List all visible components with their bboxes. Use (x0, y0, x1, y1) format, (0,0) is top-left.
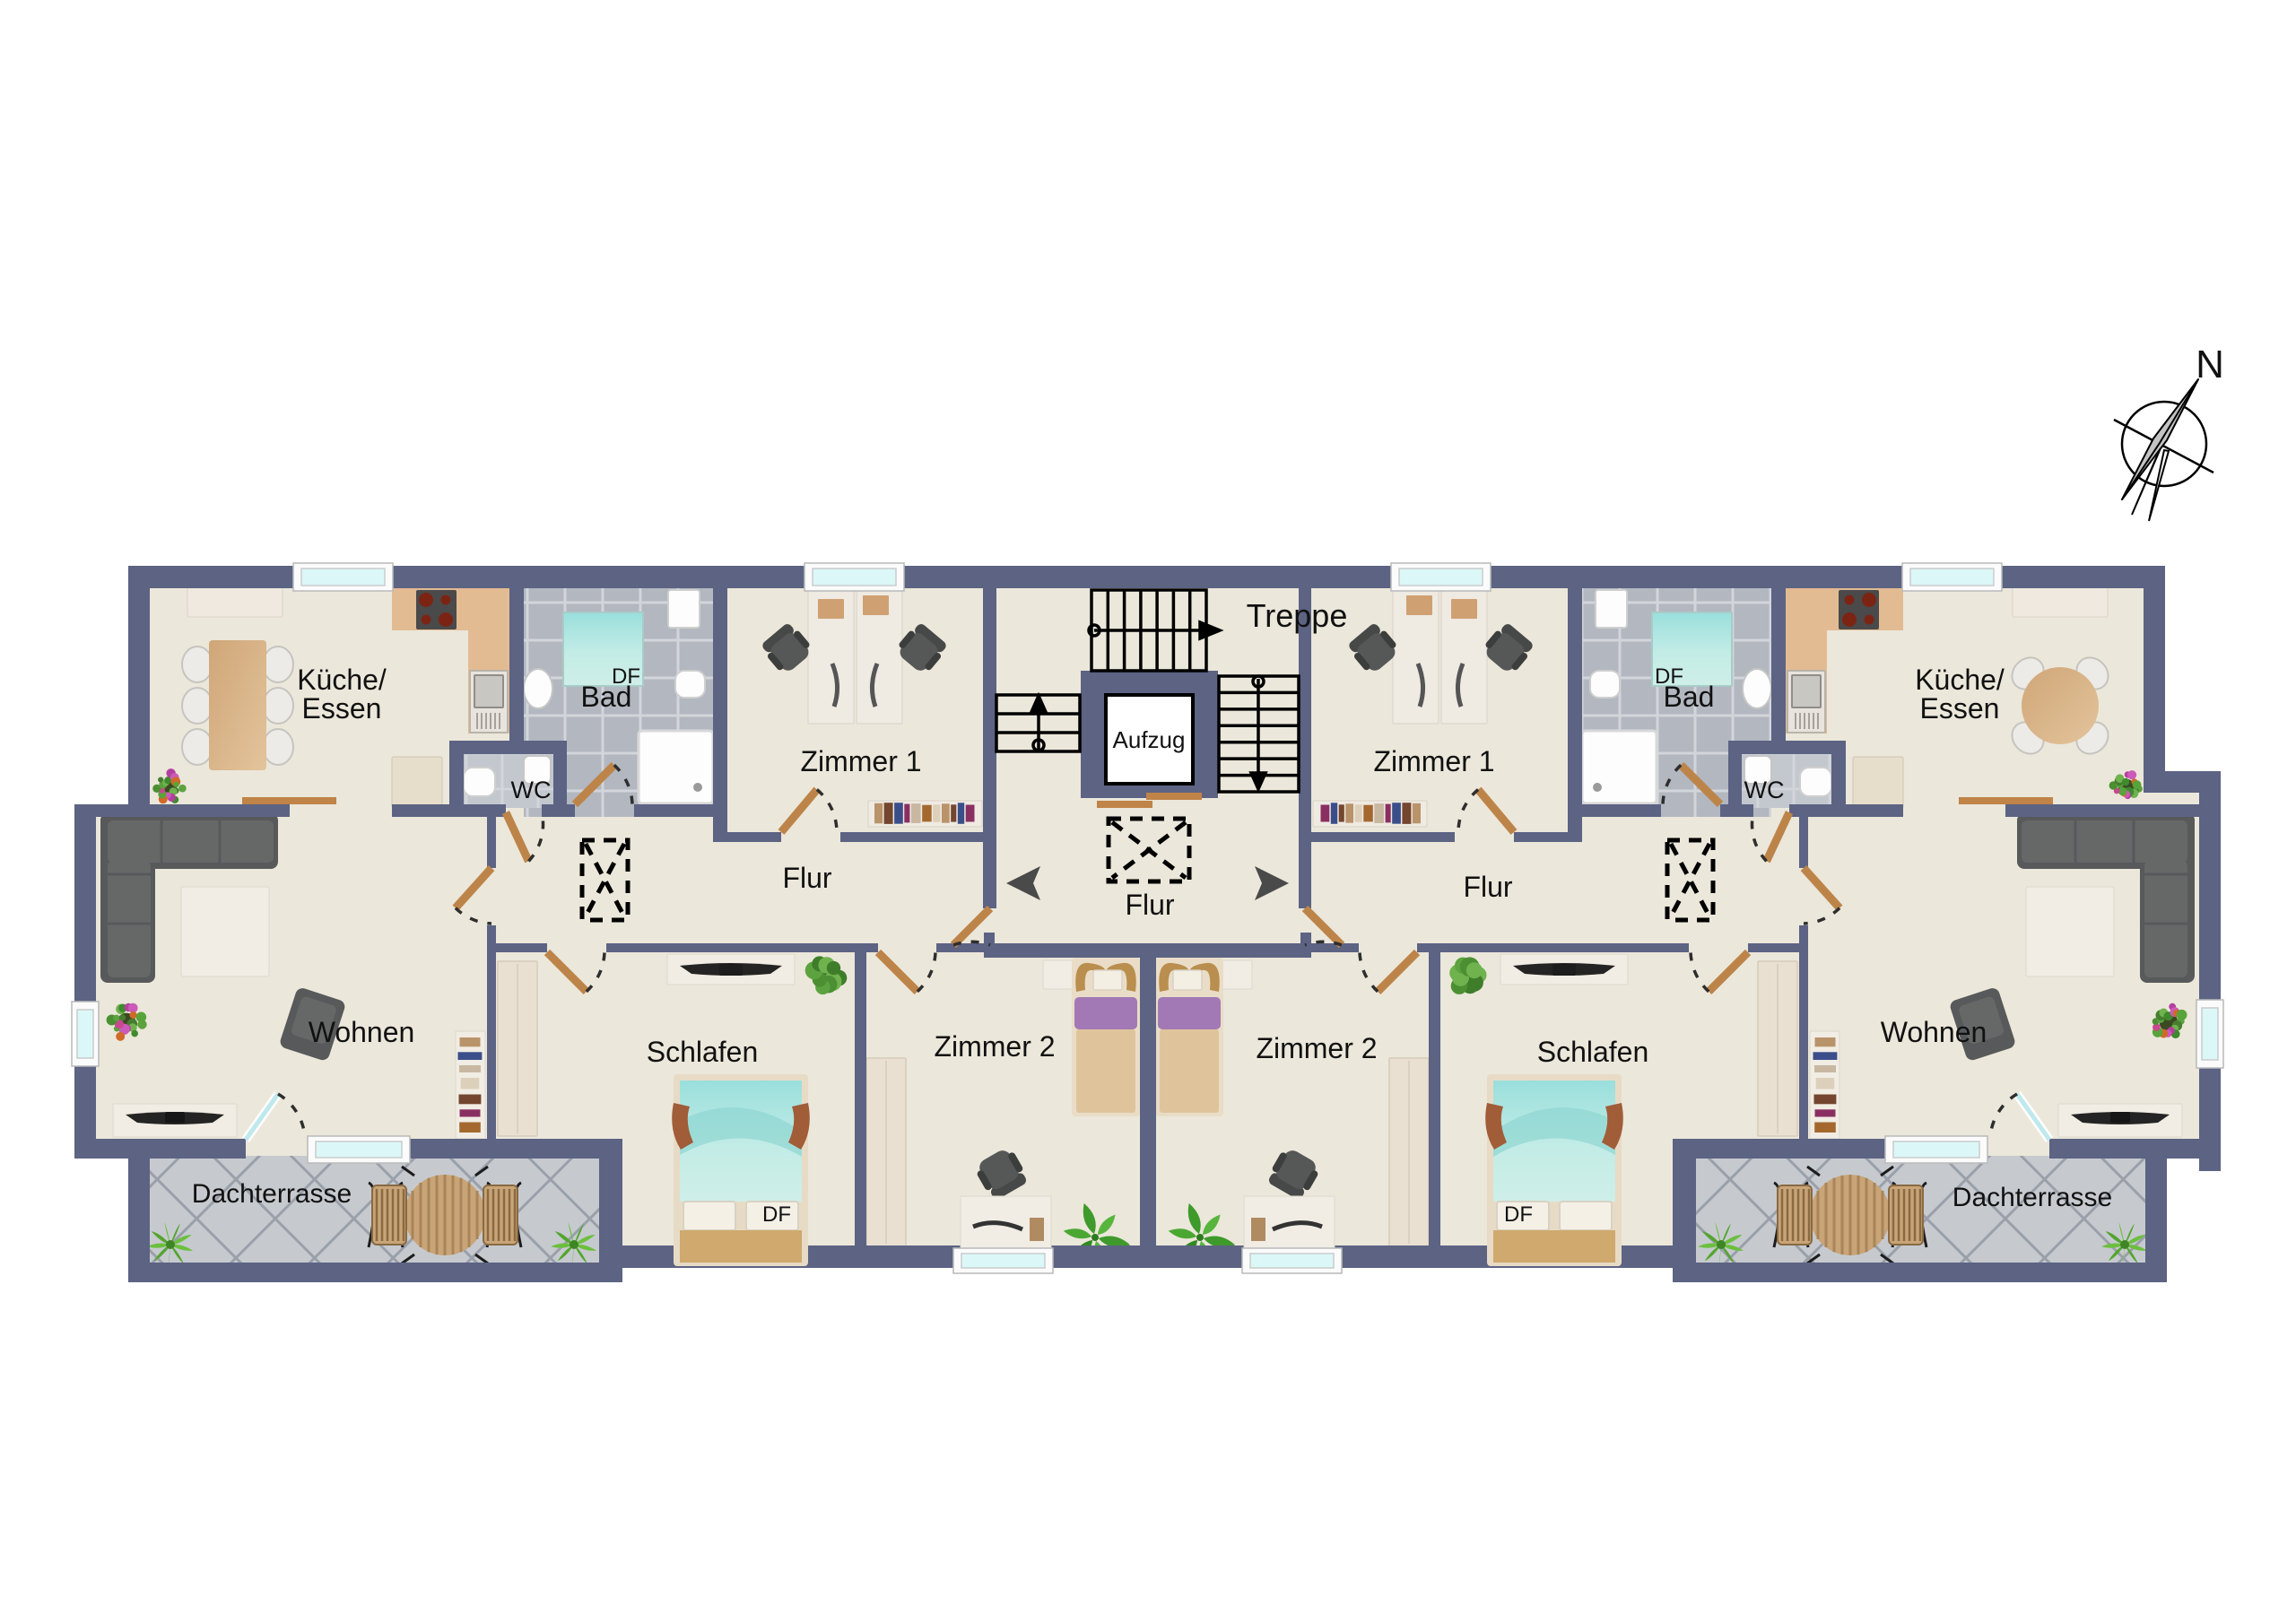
svg-text:Wohnen: Wohnen (309, 1016, 415, 1048)
svg-text:N: N (2196, 343, 2224, 386)
svg-text:Zimmer 1: Zimmer 1 (1373, 745, 1494, 777)
svg-text:Küche/: Küche/ (297, 664, 387, 696)
svg-text:WC: WC (511, 777, 552, 803)
svg-text:DF: DF (612, 664, 640, 689)
svg-text:Schlafen: Schlafen (1537, 1036, 1649, 1068)
svg-text:Dachterrasse: Dachterrasse (192, 1179, 352, 1209)
svg-text:Küche/: Küche/ (1915, 664, 2005, 696)
svg-text:Essen: Essen (1920, 692, 2000, 725)
svg-text:Essen: Essen (302, 692, 382, 725)
svg-text:Zimmer 2: Zimmer 2 (934, 1030, 1055, 1063)
svg-text:Schlafen: Schlafen (647, 1036, 759, 1068)
svg-text:Flur: Flur (782, 862, 831, 894)
svg-text:Flur: Flur (1125, 889, 1174, 921)
svg-text:Zimmer 1: Zimmer 1 (800, 745, 921, 777)
svg-text:Treppe: Treppe (1247, 597, 1348, 634)
svg-text:Flur: Flur (1463, 871, 1512, 903)
svg-text:Dachterrasse: Dachterrasse (1952, 1183, 2112, 1212)
svg-text:Zimmer 2: Zimmer 2 (1256, 1032, 1377, 1064)
svg-text:DF: DF (1655, 664, 1683, 689)
svg-text:WC: WC (1744, 777, 1785, 803)
svg-text:Aufzug: Aufzug (1113, 726, 1186, 753)
svg-text:DF: DF (1504, 1202, 1533, 1227)
svg-text:DF: DF (762, 1202, 791, 1227)
svg-text:Wohnen: Wohnen (1881, 1016, 1987, 1048)
